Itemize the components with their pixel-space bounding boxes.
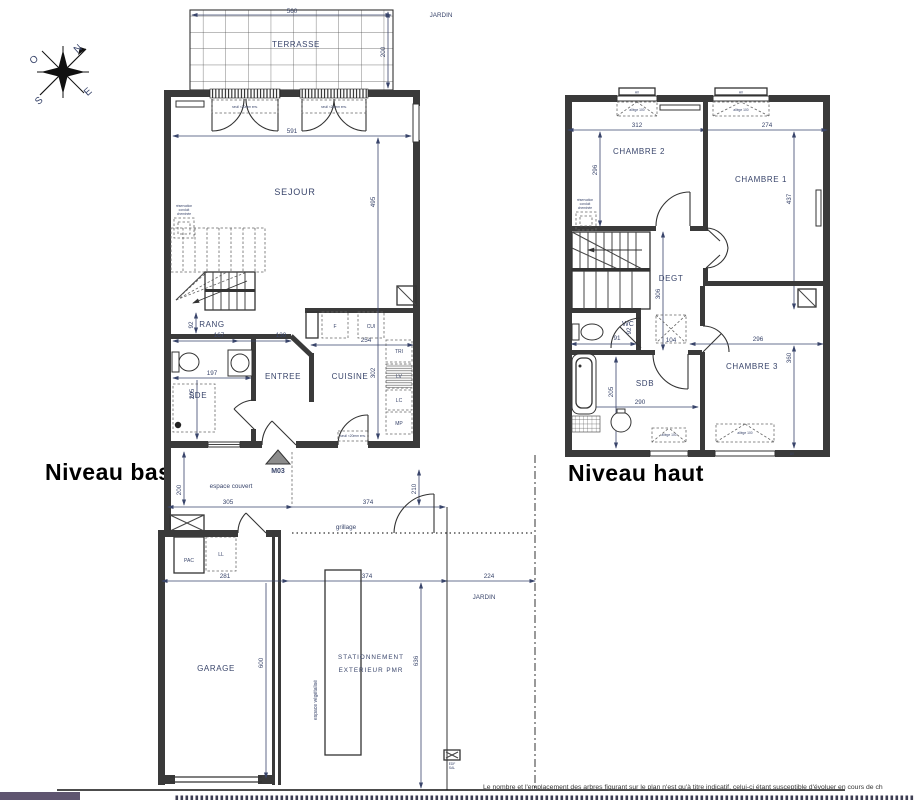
covered-area-label: espace couvert: [210, 483, 253, 490]
dim-ch1-width: 274: [762, 122, 773, 129]
dim-sejour-width: 591: [287, 128, 298, 135]
sill-note: allège 100: [661, 433, 676, 437]
trellis-symbol: [170, 515, 204, 531]
dim-sde-width: 197: [207, 370, 218, 377]
appliance-lc: LC: [396, 398, 403, 404]
level-high-title: Niveau haut: [568, 460, 704, 486]
roof-hatch: 104: [656, 315, 686, 344]
dim-parking-width: 374: [362, 573, 373, 580]
heat-pump: PAC: [174, 537, 204, 573]
garden-label-top: JARDIN: [430, 12, 453, 19]
room-cuisine: CUISINE: [332, 372, 369, 381]
appliance-fridge: F: [333, 324, 336, 330]
dim-terrace-depth: 200: [380, 46, 387, 57]
dim-degt: 306: [655, 288, 662, 299]
dim-sejour-depth: 495: [370, 196, 377, 207]
terrace-door-right: seuil <20mm env.: [302, 99, 366, 131]
wc-fixtures: [572, 324, 603, 340]
fence-label: grillage: [336, 524, 357, 531]
porch-yard: M03 espace couvert 200 305 374 210 grill…: [164, 448, 535, 573]
level-low-title: Niveau bas: [45, 459, 171, 485]
dim-porch-depth: 200: [176, 484, 183, 495]
entry-marker-label: M03: [271, 468, 285, 475]
entry-marker: M03: [266, 450, 290, 475]
dim-sde-depth: 205: [189, 388, 196, 399]
shutter-label: AV: [635, 91, 640, 95]
compass-north: N: [72, 43, 85, 56]
room-rang: RANG: [199, 320, 225, 329]
floor-plan-page: N O E S TERRASSE 560 200 JARDIN seuil <2…: [0, 0, 915, 800]
staircase-upper: [572, 232, 650, 309]
dim-ch1-depth: 437: [786, 193, 793, 204]
dim-garden-width: 224: [484, 573, 495, 580]
dim-entree-width: 130: [276, 332, 287, 339]
sill-note: allège 100: [737, 431, 752, 435]
dim-wc-width: 91: [613, 335, 621, 342]
dim-porch-width: 305: [223, 499, 234, 506]
duct-symbol-upper: [798, 289, 816, 307]
entry-door: [262, 421, 296, 445]
compass-south: S: [33, 95, 46, 108]
dim-ch3-width: 296: [753, 336, 764, 343]
dim-yard-width: 374: [363, 499, 374, 506]
compass-rose-icon: N O E S: [28, 43, 95, 108]
threshold-note: seuil <20mm env.: [232, 105, 258, 109]
gate-door: [394, 494, 434, 533]
terrace: TERRASSE 560 200: [190, 8, 393, 90]
edf-label-2: SAL: [449, 766, 455, 770]
parking-label-1: STATIONNEMENT: [338, 654, 404, 661]
room-sdb: SDB: [636, 379, 654, 388]
staircase-lower: [171, 228, 265, 310]
appliance-cooker: CUI: [367, 324, 376, 330]
garage-label: GARAGE: [197, 664, 235, 673]
ch2-door: [656, 192, 690, 226]
dim-ch2-width: 312: [632, 122, 643, 129]
dim-gate: 210: [411, 483, 418, 494]
sill-note: allège 100: [733, 108, 748, 112]
room-chambre1: CHAMBRE 1: [735, 175, 787, 184]
reservation-note: cheminée: [177, 212, 191, 216]
threshold-note: seuil <20mm env.: [321, 105, 347, 109]
dim-hatch: 104: [666, 337, 677, 344]
chimney-reservation: réservation conduit cheminée: [174, 204, 194, 238]
dim-sdb-depth: 205: [608, 386, 615, 397]
compass-east: E: [82, 86, 95, 99]
room-degt: DEGT: [659, 274, 684, 283]
dim-rang-depth: 92: [188, 321, 195, 329]
threshold-note: seuil <20mm env.: [340, 434, 366, 438]
lower-plan: seuil <20mm env. seuil <20mm env. SEJOUR…: [164, 89, 420, 448]
dim-parking-depth: 636: [413, 655, 420, 666]
dim-garage-width: 281: [220, 573, 231, 580]
ch1-double-door: [706, 228, 728, 268]
sdb-fixtures: [572, 354, 631, 432]
compass-west: O: [28, 53, 41, 67]
page-corner-bar: [0, 792, 80, 800]
dim-wc-depth: 92: [626, 327, 633, 335]
dim-ch2-depth: 296: [592, 164, 599, 175]
cut-off-text-row: [175, 795, 915, 800]
room-entree: ENTREE: [265, 372, 301, 381]
appliance-tri: TRI: [395, 349, 403, 355]
dim-rang-width: 167: [214, 332, 225, 339]
floor-plan-drawing: N O E S TERRASSE 560 200 JARDIN seuil <2…: [0, 0, 915, 800]
dim-cuisine-depth: 302: [370, 367, 377, 378]
dim-sdb-width: 290: [635, 399, 646, 406]
window-ch1: AV allège 100: [713, 88, 769, 116]
sde-door: [234, 400, 255, 430]
window-sdb-bottom: allège 100: [650, 428, 688, 456]
edf-box: EDF SAL: [444, 750, 460, 770]
sill-note: allège 100: [629, 108, 644, 112]
room-chambre3: CHAMBRE 3: [726, 362, 778, 371]
ch3-door: [703, 326, 729, 352]
dim-terrace-width: 560: [287, 8, 298, 15]
window-ch2: AV allège 100: [617, 88, 657, 116]
upper-plan: AV allège 100 AV allège 100 312 274 296 …: [565, 88, 830, 457]
garage-parking: GARAGE 281 600 374 224 espace végétalisé…: [57, 455, 845, 790]
dim-ch3-depth: 360: [786, 352, 793, 363]
room-wc: WC: [622, 321, 634, 328]
parking-label-2: EXTERIEUR PMR: [339, 667, 404, 674]
terrace-door-left: seuil <20mm env.: [212, 99, 278, 131]
shutter-label: AV: [739, 91, 744, 95]
room-chambre2: CHAMBRE 2: [613, 147, 665, 156]
washer-slot: LL: [206, 537, 236, 571]
sde-fixtures: [172, 350, 252, 432]
kitchen-door: seuil <20mm env.: [338, 415, 368, 445]
sdb-door: [653, 354, 688, 389]
appliance-dishwasher: LV: [396, 374, 402, 380]
ll-label: LL: [218, 552, 224, 558]
garage-access-door: [238, 513, 266, 533]
dim-garage-depth: 600: [258, 657, 265, 668]
appliance-mp: MP: [395, 421, 403, 427]
garden-label-mid: JARDIN: [473, 594, 496, 601]
planted-strip-label: espace végétalisé: [313, 680, 319, 720]
pac-label: PAC: [184, 558, 194, 564]
chimney-reservation-upper: réservation conduit cheminée: [576, 198, 596, 230]
disclaimer-text: Le nombre et l'emplacement des arbres fi…: [483, 784, 883, 791]
terrace-label: TERRASSE: [272, 40, 320, 49]
room-sejour: SEJOUR: [274, 187, 315, 197]
reservation-note: cheminée: [578, 206, 592, 210]
